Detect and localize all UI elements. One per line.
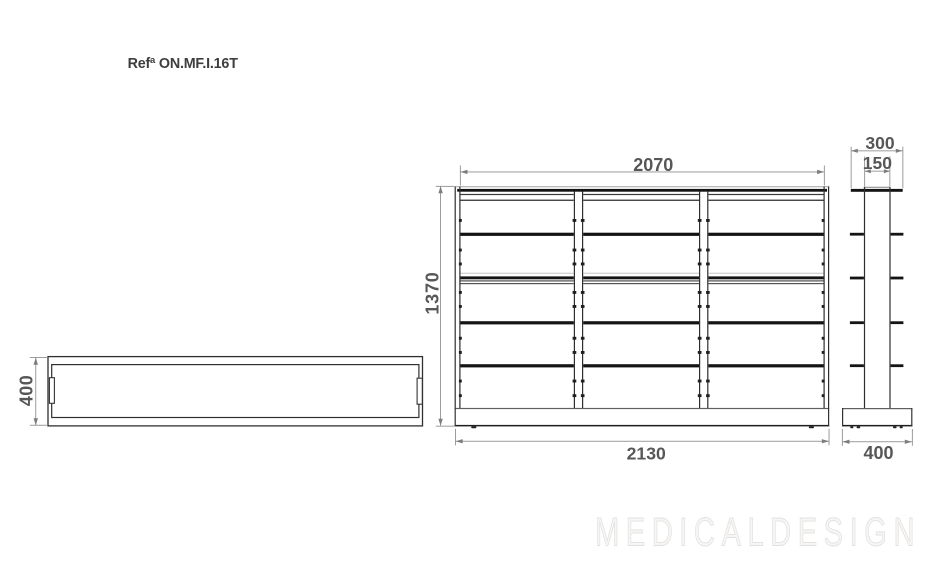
svg-text:MEDICALDESIGN: MEDICALDESIGN [595,510,921,554]
svg-text:400: 400 [863,443,893,463]
svg-text:150: 150 [863,153,892,173]
svg-text:300: 300 [865,133,894,153]
svg-text:Refª ON.MF.I.16T: Refª ON.MF.I.16T [128,56,239,72]
svg-text:1370: 1370 [423,271,443,314]
svg-text:2070: 2070 [633,155,673,175]
svg-text:400: 400 [17,375,37,406]
svg-text:2130: 2130 [627,443,666,463]
